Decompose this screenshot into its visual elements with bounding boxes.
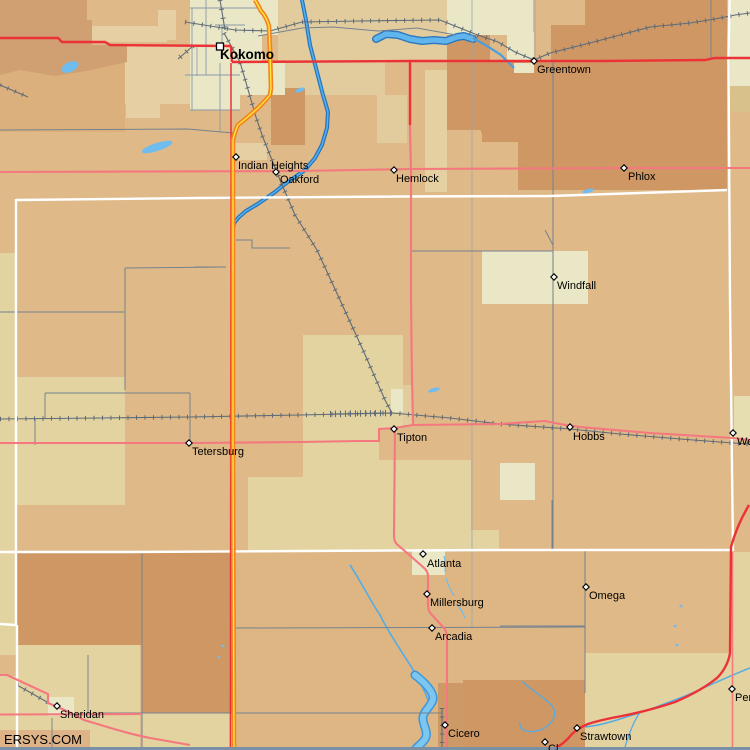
svg-text:Arcadia: Arcadia [435, 631, 473, 643]
svg-text:Hemlock: Hemlock [396, 173, 439, 185]
svg-text:Cicero: Cicero [448, 728, 480, 740]
svg-text:Windfall: Windfall [557, 280, 596, 292]
svg-text:Millersburg: Millersburg [430, 597, 484, 609]
svg-text:ERSYS.COM: ERSYS.COM [4, 732, 82, 747]
svg-text:Tetersburg: Tetersburg [192, 446, 244, 458]
svg-text:Kokomo: Kokomo [220, 47, 274, 62]
svg-text:We: We [737, 436, 750, 448]
svg-text:Tipton: Tipton [397, 432, 427, 444]
svg-text:Hobbs: Hobbs [573, 431, 605, 443]
svg-text:Indian Heights: Indian Heights [238, 160, 309, 172]
svg-text:Oakford: Oakford [280, 174, 319, 186]
svg-text:Per: Per [735, 692, 750, 704]
svg-text:Omega: Omega [589, 590, 626, 602]
svg-text:Phlox: Phlox [628, 171, 656, 183]
svg-text:Strawtown: Strawtown [580, 731, 631, 743]
svg-text:Sheridan: Sheridan [60, 709, 104, 721]
svg-text:Greentown: Greentown [537, 64, 591, 76]
svg-text:Atlanta: Atlanta [427, 558, 462, 570]
svg-text:Cl: Cl [548, 743, 558, 750]
